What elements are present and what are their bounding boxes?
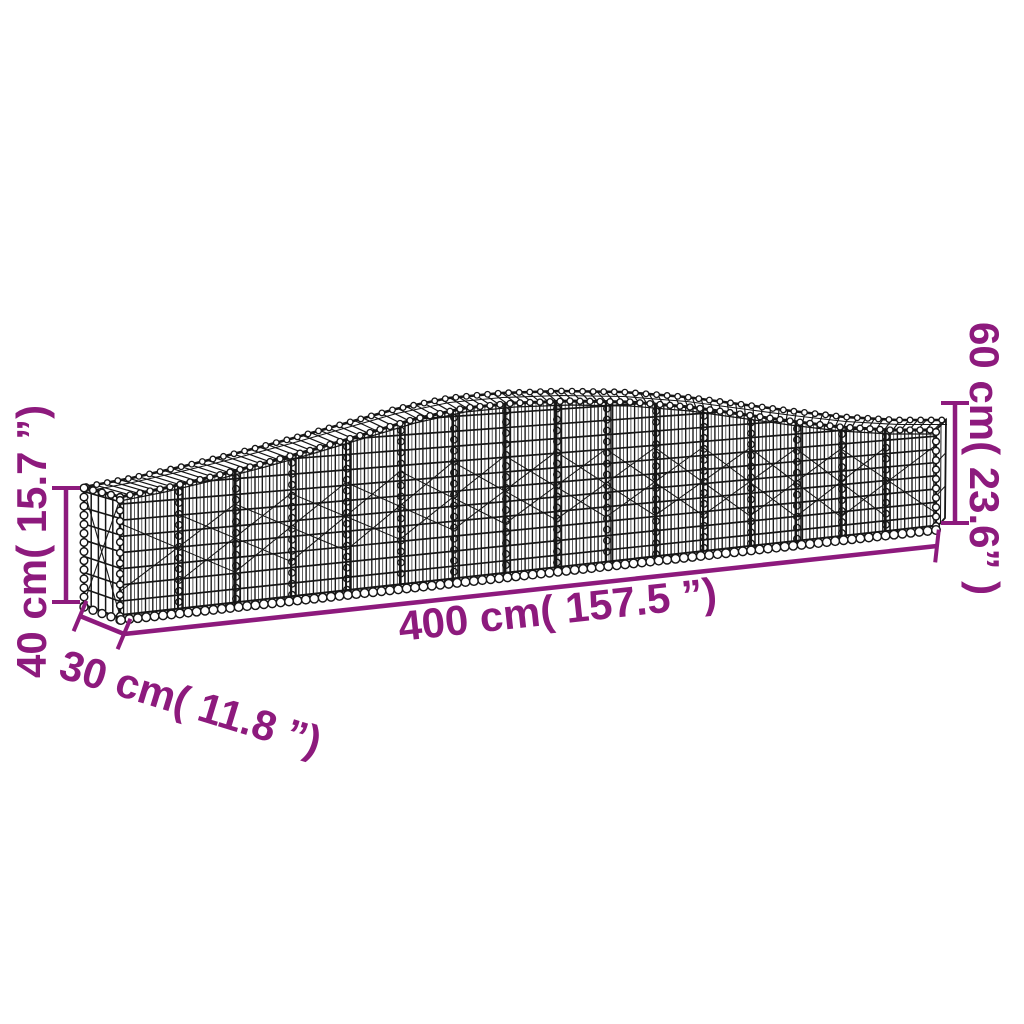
product-diagram: 40 cm( 15.7 ”) 30 cm( 11.8 ”) 400 cm( 15… [0, 0, 1024, 1024]
gabion-left-end-panel [84, 488, 120, 618]
gabion-right-end-panel [936, 420, 946, 528]
end-height-label: 40 cm( 15.7 ”) [8, 405, 55, 678]
gabion-basket [80, 383, 947, 625]
gabion-dimension-illustration: 40 cm( 15.7 ”) 30 cm( 11.8 ”) 400 cm( 15… [0, 0, 1024, 1024]
middle-height-label: 60 cm( 23.6” ) [961, 322, 1008, 595]
dimension-annotations: 40 cm( 15.7 ”) 30 cm( 11.8 ”) 400 cm( 15… [8, 322, 1008, 765]
depth-label: 30 cm( 11.8 ”) [54, 641, 327, 765]
dimension-end-height: 40 cm( 15.7 ”) [8, 405, 80, 678]
dimension-middle-height: 60 cm( 23.6” ) [941, 322, 1008, 595]
